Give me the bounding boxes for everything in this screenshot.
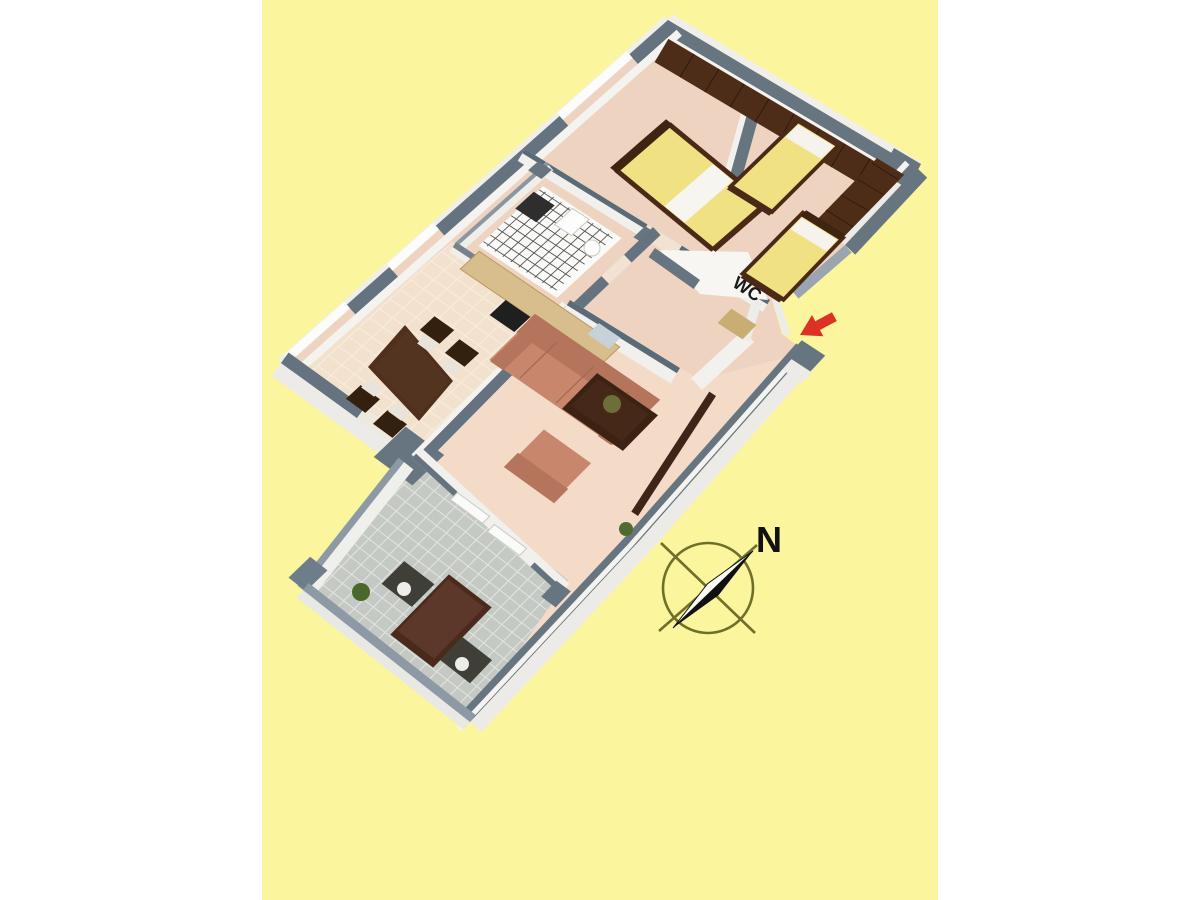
svg-text:N: N [756,519,782,560]
